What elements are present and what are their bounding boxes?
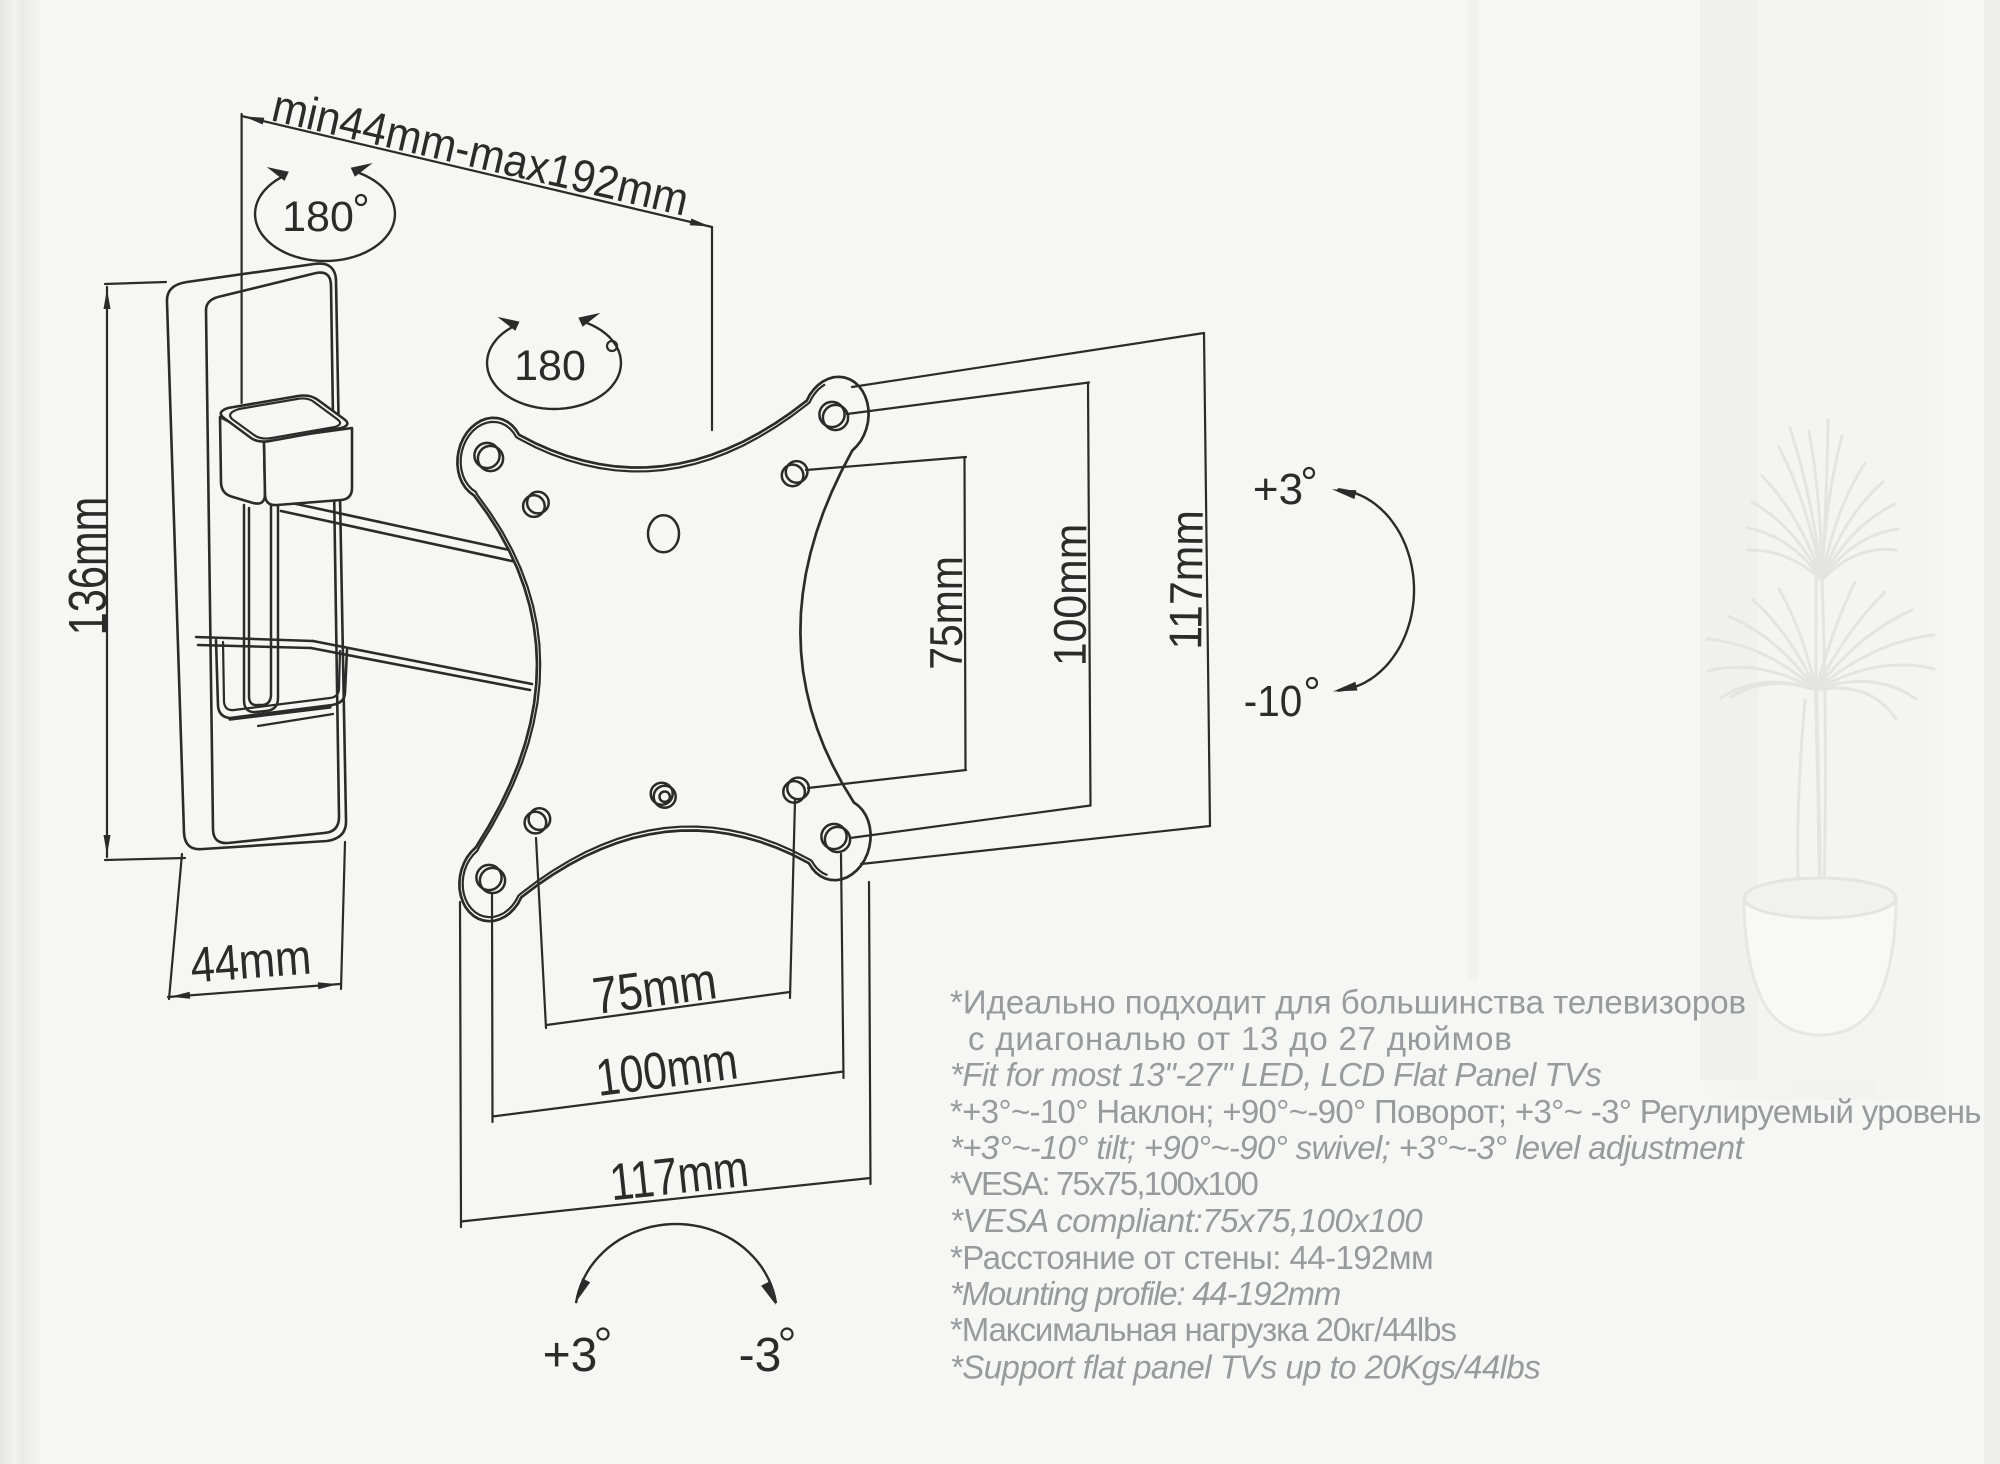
svg-text:+3: +3	[1253, 465, 1303, 514]
svg-text:180: 180	[514, 342, 586, 390]
svg-text:180: 180	[282, 193, 354, 241]
svg-text:*Расстояние от стены: 44-192мм: *Расстояние от стены: 44-192мм	[950, 1239, 1433, 1276]
svg-text:136mm: 136mm	[58, 497, 119, 636]
svg-text:*Support flat panel TVs up to: *Support flat panel TVs up to 20Kgs/44lb…	[950, 1348, 1540, 1385]
svg-text:*Идеально подходит для большин: *Идеально подходит для большинства телев…	[950, 984, 1746, 1021]
svg-text:117mm: 117mm	[1161, 510, 1213, 650]
svg-text:*VESA compliant:75x75,100x100: *VESA compliant:75x75,100x100	[950, 1202, 1423, 1239]
svg-text:*Mounting profile: 44-192mm: *Mounting profile: 44-192mm	[950, 1275, 1340, 1312]
svg-text:-3: -3	[739, 1329, 782, 1382]
svg-text:*+3°~-10° tilt; +90°~-90° swiv: *+3°~-10° tilt; +90°~-90° swivel; +3°~-3…	[950, 1129, 1745, 1166]
svg-text:-10: -10	[1244, 676, 1302, 725]
svg-text:75mm: 75mm	[922, 556, 973, 670]
svg-text:100mm: 100mm	[1045, 523, 1096, 666]
svg-text:44mm: 44mm	[188, 929, 313, 993]
svg-text:*+3°~-10° Наклон; +90°~-90° По: *+3°~-10° Наклон; +90°~-90° Поворот; +3°…	[950, 1093, 1981, 1130]
svg-text:+3: +3	[543, 1329, 598, 1382]
svg-text:*Fit for most 13"-27" LED, LCD: *Fit for most 13"-27" LED, LCD Flat Pane…	[950, 1056, 1601, 1093]
svg-text:*VESA: 75x75,100x100: *VESA: 75x75,100x100	[950, 1165, 1258, 1202]
svg-text:*Максимальная нагрузка 20кг/44: *Максимальная нагрузка 20кг/44lbs	[950, 1311, 1456, 1348]
svg-text:с диагональю от 13 до 27 дюймо: с диагональю от 13 до 27 дюймов	[968, 1020, 1513, 1057]
